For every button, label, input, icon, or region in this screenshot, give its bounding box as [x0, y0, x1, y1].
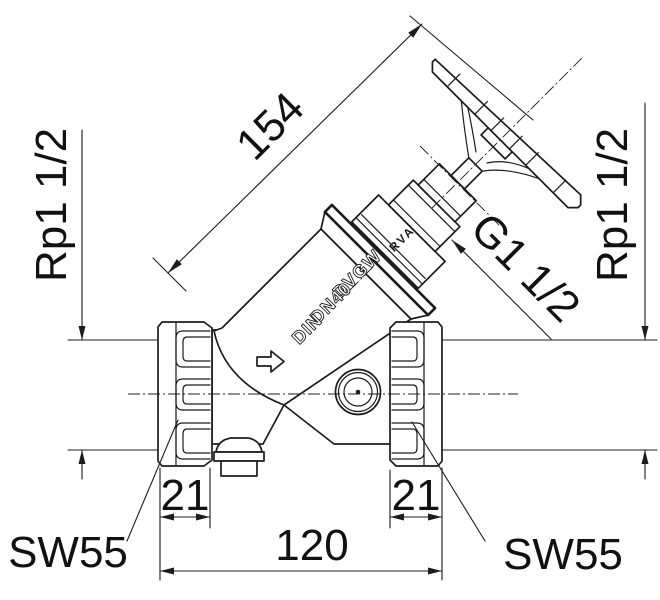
dim-rp-right-ext	[443, 340, 657, 450]
dim-21-right-label: 21	[392, 471, 441, 520]
arrowhead	[642, 326, 649, 340]
dim-120-label: 120	[275, 521, 348, 570]
drain-boss-flange	[214, 452, 264, 461]
arrowhead	[79, 450, 86, 464]
arrowhead	[428, 568, 442, 575]
arrowhead	[160, 568, 174, 575]
arrowhead	[79, 326, 86, 340]
dim-rp-left-label: Rp1 1/2	[27, 128, 76, 282]
dim-g-label: G1 1/2	[461, 204, 589, 332]
valve-technical-drawing: DVGW DN40 DIN RVA 154 Rp1 1/2 Rp1 1/2 G1…	[0, 0, 660, 600]
sw55-right-label: SW55	[503, 530, 623, 579]
sw55-left-label: SW55	[8, 528, 128, 577]
drain-boss-dome	[216, 438, 262, 452]
dim-rp-right-label: Rp1 1/2	[588, 128, 637, 282]
dim-154-label: 154	[227, 83, 314, 170]
handwheel-spoke	[482, 170, 539, 179]
arrowhead	[642, 450, 649, 464]
dim-21-left-label: 21	[161, 471, 210, 520]
dim-154-ext-bottom	[153, 258, 186, 291]
drain-plug	[221, 461, 257, 476]
dim-rp-left-ext	[68, 340, 157, 450]
